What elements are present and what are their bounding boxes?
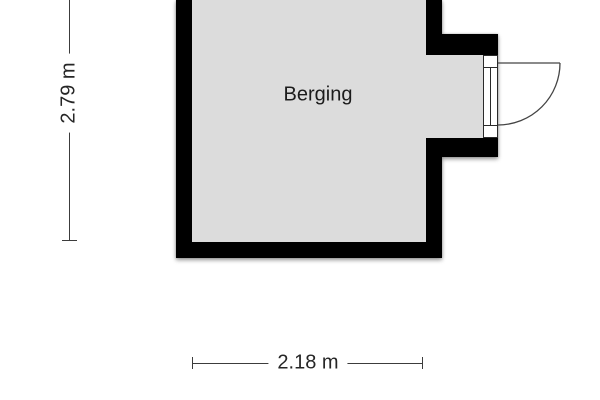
door-frame [483,55,498,138]
wall-right-lower [426,156,442,258]
wall-jog-top [426,34,498,55]
doorway-floor [426,55,483,138]
vertical-dimension-label: 2.79 m [57,53,82,132]
vertical-dimension-tick [62,240,77,241]
wall-right-upper [426,0,442,35]
wall-jog-bottom [426,138,498,157]
horizontal-dimension-tick-right [422,357,423,369]
floor-plan [0,0,600,400]
room-label: Berging [284,84,353,107]
horizontal-dimension-label: 2.18 m [268,351,347,376]
floor-plan-canvas: Berging 2.79 m 2.18 m [0,0,600,400]
wall-bottom [176,242,442,258]
horizontal-dimension-tick-left [192,357,193,369]
wall-left [176,0,192,258]
room-floor [192,0,426,242]
door-frame-line [490,68,491,125]
door-jamb-bottom [484,125,497,126]
